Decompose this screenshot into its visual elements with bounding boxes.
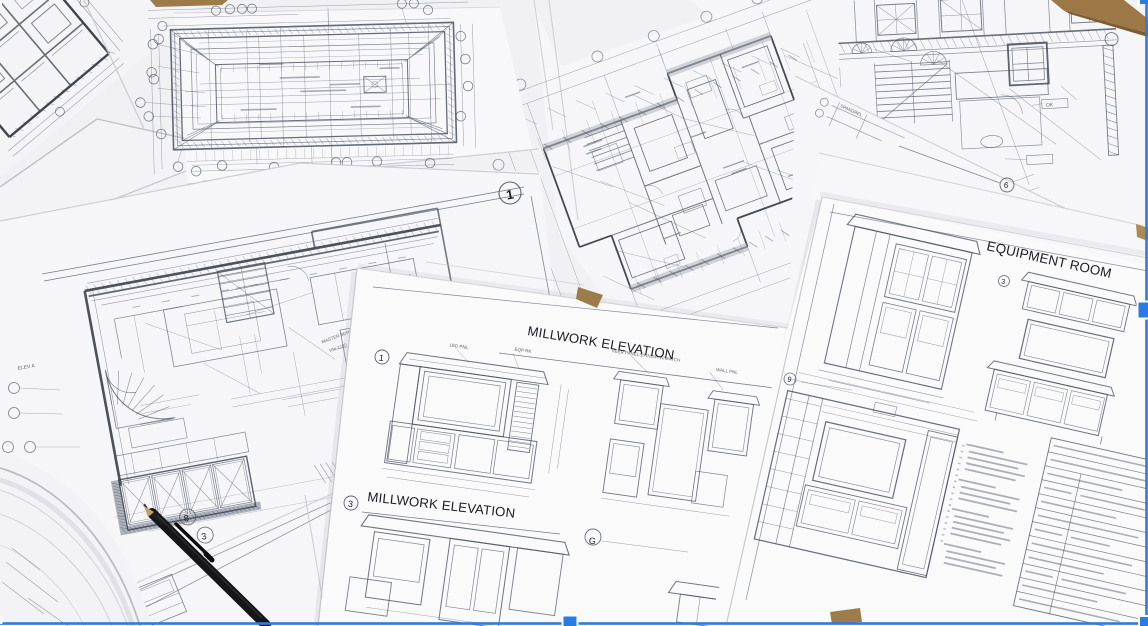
svg-text:G: G bbox=[588, 535, 596, 546]
svg-text:OK: OK bbox=[1046, 102, 1054, 108]
